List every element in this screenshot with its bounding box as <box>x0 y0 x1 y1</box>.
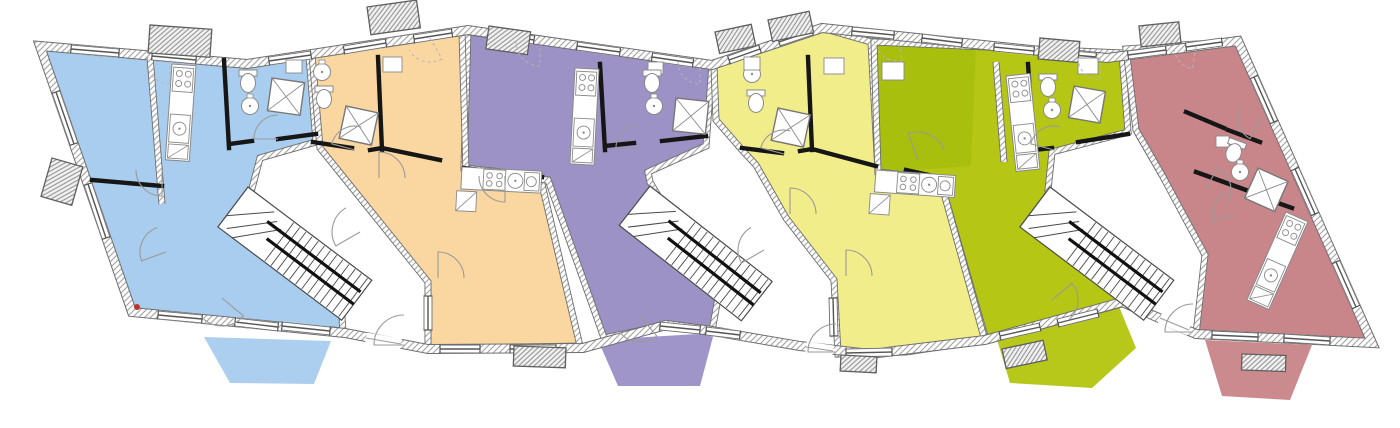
balcony-slab <box>486 26 531 55</box>
washbasin-tap <box>247 94 253 98</box>
toilet-bowl <box>241 74 256 93</box>
balcony <box>367 0 420 35</box>
washbasin-tap <box>651 94 657 98</box>
washing-machine <box>1216 136 1229 147</box>
floor-plan-drawing <box>0 0 1400 428</box>
window-jamb-tick <box>202 315 203 324</box>
balcony <box>840 355 877 373</box>
washbasin-drain <box>321 71 323 73</box>
toilet-icon <box>747 90 765 113</box>
partition-wall <box>605 143 634 146</box>
washing-machine <box>383 57 402 72</box>
shower-icon <box>673 98 709 134</box>
shower-icon <box>771 108 810 147</box>
balcony <box>1038 38 1080 62</box>
washing-machine <box>1078 58 1098 74</box>
floorplan-canvas <box>0 0 1400 428</box>
washbasin-drain <box>653 105 655 107</box>
washbasin-drain <box>249 105 251 107</box>
toilet-icon <box>239 70 257 93</box>
balcony <box>148 25 212 57</box>
window-glass-line <box>846 352 892 353</box>
washbasin-tap <box>1237 160 1243 164</box>
toilet-icon <box>1039 74 1057 97</box>
washbasin-drain <box>1051 109 1053 111</box>
balcony-slab <box>41 158 83 205</box>
balcony-slab <box>1241 354 1286 372</box>
balcony <box>1241 354 1286 372</box>
balcony-slab <box>840 355 877 373</box>
balcony <box>486 26 531 55</box>
unit-subroom-unit-5 <box>874 42 976 172</box>
balcony-slab <box>148 25 212 57</box>
red-marker <box>134 304 140 310</box>
partition-wall <box>229 141 252 144</box>
washbasin-tap <box>319 60 325 64</box>
window-jamb-tick <box>894 31 895 40</box>
toilet-bowl <box>1041 78 1056 97</box>
toilet-icon <box>643 70 661 93</box>
terrace-unit-1 <box>204 337 331 384</box>
washing-machine <box>286 60 302 73</box>
washbasin-drain <box>1239 171 1241 173</box>
toilet-bowl <box>645 74 660 93</box>
balcony-slab <box>1139 22 1181 47</box>
window-jamb-tick <box>1284 334 1285 343</box>
appliance-box <box>744 57 760 70</box>
shower-icon <box>339 106 378 145</box>
balcony-slab <box>367 0 420 35</box>
appliance-box <box>882 62 904 80</box>
window-glass-line <box>833 298 834 336</box>
window-jamb-tick <box>71 45 72 54</box>
toilet-bowl <box>749 94 764 113</box>
balcony-slab <box>513 346 566 368</box>
window-jamb-tick <box>119 49 120 58</box>
shower-icon <box>267 78 304 115</box>
balcony <box>1139 22 1181 47</box>
kitchen-counter <box>461 167 542 193</box>
balcony <box>513 346 566 368</box>
shower-icon <box>1068 86 1105 123</box>
window-jamb-tick <box>852 27 853 36</box>
kitchen-counter <box>570 68 599 165</box>
balcony <box>41 158 83 205</box>
washbasin-tap <box>1049 98 1055 102</box>
washing-machine <box>824 58 844 74</box>
toilet-bowl <box>317 90 332 109</box>
window-jamb-tick <box>158 311 159 320</box>
window-jamb-tick <box>1330 337 1331 346</box>
kitchen-unit-3 <box>570 68 599 165</box>
washbasin-drain <box>751 73 753 75</box>
balcony-slab <box>1038 38 1080 62</box>
toilet-icon <box>315 86 333 109</box>
